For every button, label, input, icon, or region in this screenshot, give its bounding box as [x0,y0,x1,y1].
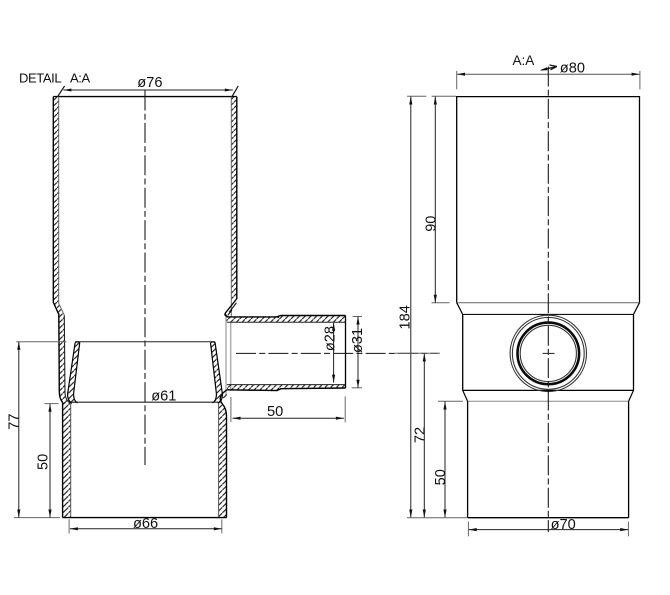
svg-text:50: 50 [433,469,449,485]
svg-text:184: 184 [397,305,413,329]
svg-text:50: 50 [267,404,283,420]
svg-text:ø66: ø66 [133,516,158,532]
svg-text:ø28: ø28 [322,326,338,351]
svg-text:DETAIL: DETAIL [19,70,61,85]
svg-text:72: 72 [412,427,428,443]
svg-text:90: 90 [423,216,439,232]
svg-text:77: 77 [6,413,22,429]
svg-text:ø76: ø76 [137,75,162,91]
svg-text:ø61: ø61 [151,388,176,404]
svg-text:A:A: A:A [513,53,535,68]
svg-text:A:A: A:A [70,70,90,85]
svg-text:50: 50 [35,454,51,470]
svg-text:ø70: ø70 [551,517,576,533]
svg-text:ø31: ø31 [350,328,366,353]
